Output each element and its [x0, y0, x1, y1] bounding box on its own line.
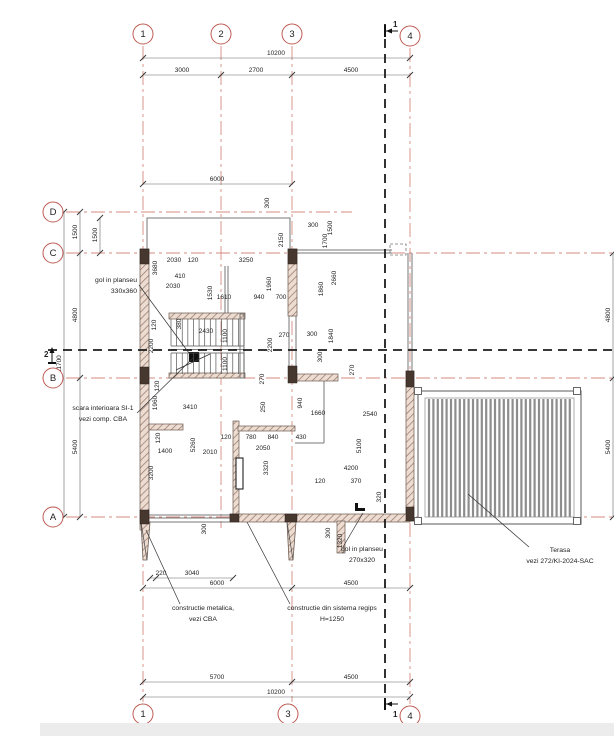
grid-bubble-label: C [50, 248, 57, 259]
grid-bubble-label: 4 [407, 31, 412, 42]
wall-segment [169, 373, 245, 378]
dimension-text: 2030 [167, 257, 182, 264]
dimension-text: 4800 [72, 307, 79, 322]
dimension-text: 1660 [311, 410, 326, 417]
grid-bubble-label: 1 [140, 29, 145, 40]
dimension-text: 410 [175, 273, 186, 280]
dimension-text: 1500 [327, 220, 334, 235]
grid-bubble-A: A [43, 507, 63, 527]
dimension-text: 940 [254, 294, 265, 301]
wall-segment [140, 249, 149, 530]
wall-segment [238, 426, 295, 431]
grid-bubble-4: 4 [400, 26, 420, 46]
dimension-text: 1100 [222, 329, 229, 343]
dimension-text: 1610 [217, 294, 232, 301]
dimension-text: 3250 [239, 257, 254, 264]
dimension-text: 5100 [356, 438, 363, 453]
wall-column [406, 507, 414, 521]
dimension-text: 120 [151, 319, 158, 330]
grid-bubble-label: B [50, 373, 56, 384]
wall-segment [169, 313, 245, 319]
dimension-text: 10200 [267, 689, 285, 696]
buttress-post [287, 522, 296, 560]
grid-bubble-B: B [43, 368, 63, 388]
dimension-text: 120 [221, 434, 232, 441]
section-marker-label: 1 [393, 710, 398, 719]
dimension-text: 2540 [363, 411, 378, 418]
dimension-text: 300 [264, 197, 271, 208]
dimension-text: 4500 [344, 674, 359, 681]
section-marker-arrowhead [386, 29, 392, 34]
dimension-text: 4500 [344, 580, 359, 587]
wall-segment [149, 424, 183, 430]
dimension-text: 300 [308, 222, 319, 229]
section-marker-label: 1 [393, 20, 398, 29]
dimension-text: 4500 [344, 67, 359, 74]
dimension-text: 1530 [207, 285, 214, 300]
dimension-text: 3040 [185, 570, 200, 577]
dimension-text: 5400 [605, 439, 612, 454]
dimension-text: 1500 [92, 227, 99, 242]
dimension-text: 250 [260, 401, 267, 412]
grid-bubble-label: 2 [218, 29, 223, 40]
grid-bubble-C: C [43, 243, 63, 263]
dimension-text: 2010 [203, 449, 218, 456]
dimension-text: 1500 [72, 224, 79, 239]
grid-bubble-label: A [50, 512, 57, 523]
label-gol-planseu-270: gol in planseu [341, 546, 383, 553]
dimension-text: 2430 [199, 328, 214, 335]
dimension-text: 3680 [152, 260, 159, 275]
label-gol-planseu-330: 330x360 [111, 288, 137, 295]
dimension-text: 4800 [605, 307, 612, 322]
dimension-text: 300 [317, 351, 324, 362]
dimension-text: 120 [154, 380, 161, 391]
section-marker-arrowhead [386, 702, 392, 707]
grid-bubble-3: 3 [282, 24, 302, 44]
dimension-text: 780 [246, 434, 257, 441]
wall-column [288, 249, 297, 264]
wall-column [288, 366, 297, 383]
label-constructie-metalica: constructie metalica, [172, 605, 234, 612]
dimension-text: 1860 [318, 281, 325, 296]
dimension-text: 2200 [148, 338, 155, 353]
dimension-text: 1100 [222, 357, 229, 371]
dimension-text: 430 [296, 434, 307, 441]
dimension-text: 10200 [267, 50, 285, 57]
label-constructie-metalica: vezi CBA [189, 616, 217, 623]
dimension-text: 5400 [72, 439, 79, 454]
terrace-post [415, 518, 422, 525]
dimension-text: 270 [259, 373, 266, 384]
dimension-text: 6000 [210, 176, 225, 183]
wall-column [285, 514, 297, 522]
dimension-text: 120 [155, 432, 162, 443]
floor-plan-sheet: 1020030002700450060002203040600045005700… [40, 16, 614, 736]
terrace-post [574, 388, 581, 395]
grid-bubble-1: 1 [133, 704, 153, 724]
dimension-text: 3320 [263, 460, 270, 475]
dimension-text: 700 [276, 294, 287, 301]
label-constructie-regips: H=1250 [320, 616, 344, 623]
wall-column [140, 249, 149, 264]
door-leaf [236, 458, 243, 489]
dimension-text: 1400 [158, 448, 173, 455]
grid-bubble-D: D [43, 202, 63, 222]
label-gol-planseu-330: gol in planseu [95, 277, 137, 284]
dimension-text: 2700 [249, 67, 264, 74]
dimension-text: 300 [325, 527, 332, 538]
dimension-text: 120 [188, 257, 199, 264]
wall-column [406, 371, 414, 387]
dimension-text: 5700 [210, 674, 225, 681]
dimension-text: 380 [176, 318, 183, 329]
section-cut: 1122 [44, 20, 614, 719]
label-scara-interioara: vezi comp. CBA [79, 416, 128, 423]
wall-column [230, 514, 239, 522]
dimension-text: 3200 [148, 465, 155, 480]
label-constructie-regips-leader [247, 522, 290, 604]
dimension-text: 270 [279, 332, 290, 339]
wall-segment [297, 374, 338, 381]
dimension-text: 2150 [278, 232, 285, 247]
wall-segment [230, 514, 410, 522]
terrace [415, 388, 582, 525]
grid-bubble-label: 1 [140, 709, 145, 720]
grid-bubble-label: 3 [289, 29, 294, 40]
label-terasa: Terasa [550, 547, 571, 554]
sheet-footer-strip [40, 723, 614, 736]
grid-bubble-2: 2 [211, 24, 231, 44]
dimension-text: 3000 [175, 67, 190, 74]
wall-column [140, 367, 149, 384]
dimension-text: 370 [351, 478, 362, 485]
terrace-post [574, 518, 581, 525]
dimension-text: 1840 [328, 328, 335, 343]
dimension-text: 1700 [322, 233, 329, 248]
wall-segment [406, 371, 414, 521]
label-constructie-regips: constructie din sistema regips [287, 605, 377, 612]
dimension-text: 2200 [267, 337, 274, 352]
dimension-text: 3410 [183, 404, 198, 411]
dimension-text: 2030 [166, 283, 181, 290]
dimension-text: 6000 [210, 580, 225, 587]
dimension-text: 4200 [344, 465, 359, 472]
label-terasa: vezi 272/KI-2024-SAC [526, 558, 593, 565]
dimension-text: 840 [268, 434, 279, 441]
grid-bubble-1: 1 [133, 24, 153, 44]
slab-opening-mark [355, 503, 358, 511]
buttress-post [141, 522, 150, 560]
wall-column [140, 510, 149, 524]
label-constructie-metalica-leader [146, 530, 180, 604]
label-gol-planseu-270: 270x320 [349, 557, 375, 564]
dimension-text: 320 [376, 491, 383, 502]
grid-bubble-label: 3 [285, 709, 290, 720]
section-marker-label: 2 [44, 350, 49, 359]
dimension-text: 2050 [256, 445, 271, 452]
dimension-text: 300 [201, 523, 208, 534]
label-scara-interioara: scara interioara SI-1 [72, 405, 133, 412]
dimension-text: 270 [349, 364, 356, 375]
dimension-text: 1960 [266, 276, 273, 291]
grid-bubble-label: 4 [407, 711, 412, 722]
grid-bubble-label: D [50, 207, 57, 218]
floor-plan-drawing: 1020030002700450060002203040600045005700… [40, 16, 614, 736]
dimension-text: 940 [297, 397, 304, 408]
grid-bubble-3: 3 [278, 704, 298, 724]
terrace-post [415, 388, 422, 395]
dimension-text: 300 [307, 331, 318, 338]
dimension-text: 2660 [331, 270, 338, 285]
thin-line [147, 218, 290, 249]
dimension-text: 120 [315, 478, 326, 485]
dimension-text: 5260 [190, 437, 197, 452]
